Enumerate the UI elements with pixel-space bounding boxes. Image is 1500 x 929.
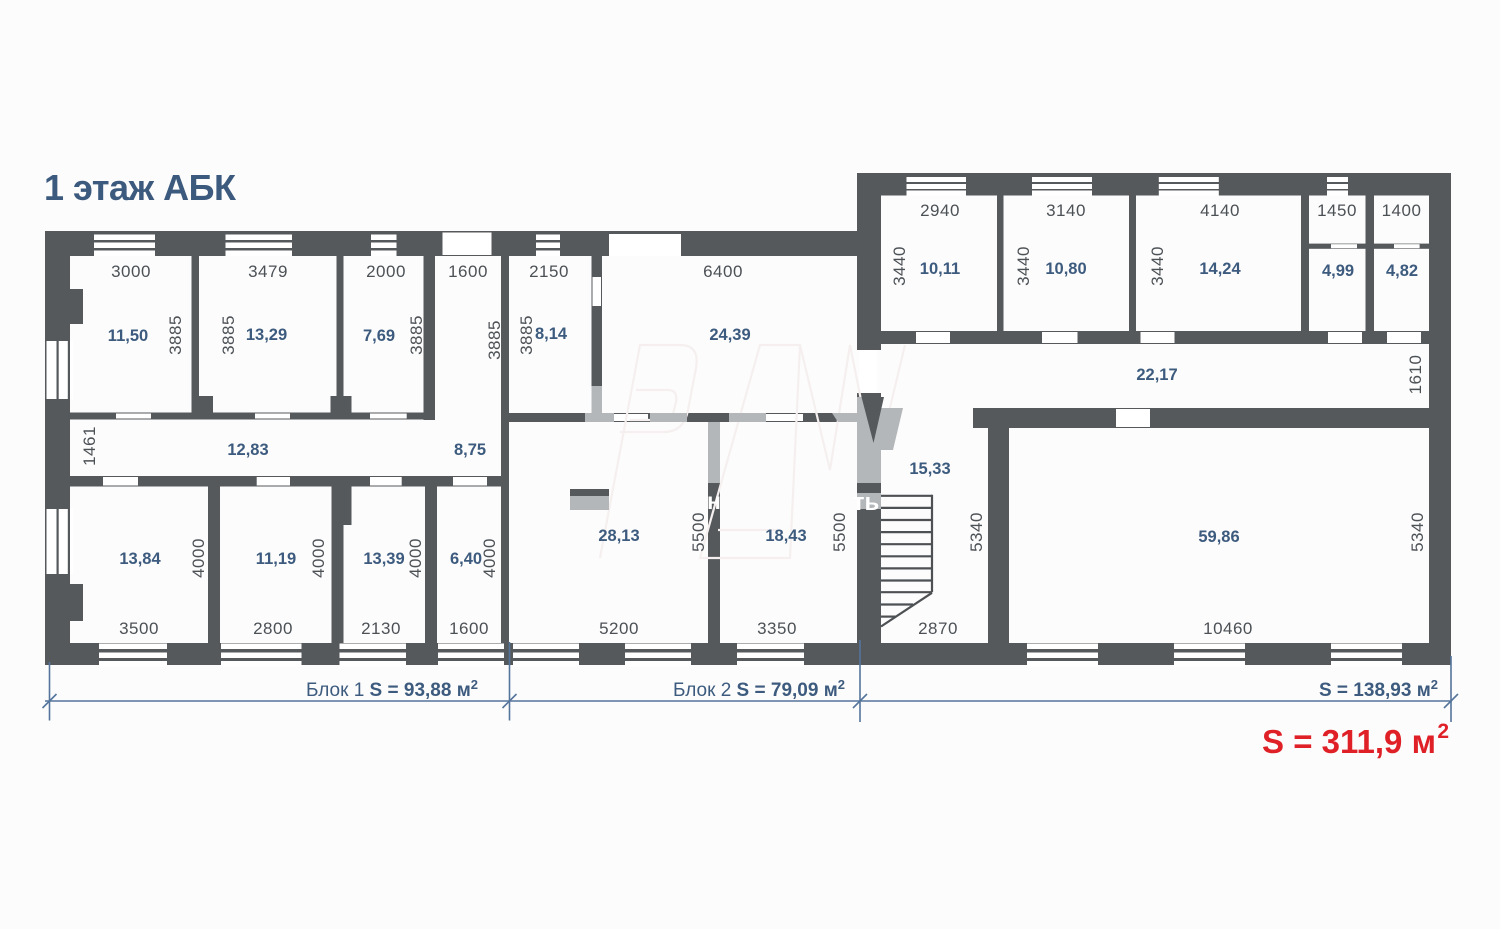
svg-text:8,14: 8,14 bbox=[535, 325, 568, 343]
svg-text:14,24: 14,24 bbox=[1199, 260, 1241, 278]
svg-text:13,29: 13,29 bbox=[246, 326, 287, 344]
svg-text:S = 311,9 м: S = 311,9 м bbox=[1262, 723, 1436, 760]
svg-text:1600: 1600 bbox=[448, 262, 488, 281]
svg-text:3000: 3000 bbox=[111, 262, 151, 281]
svg-text:3885: 3885 bbox=[517, 315, 536, 355]
svg-text:5340: 5340 bbox=[1408, 512, 1427, 552]
svg-text:3885: 3885 bbox=[219, 315, 238, 355]
svg-text:5500: 5500 bbox=[689, 512, 708, 552]
svg-text:Блок 1 S = 93,88 м2: Блок 1 S = 93,88 м2 bbox=[306, 677, 478, 701]
svg-text:22,17: 22,17 bbox=[1136, 366, 1177, 384]
svg-text:12,83: 12,83 bbox=[227, 441, 268, 459]
svg-text:1 этаж АБК: 1 этаж АБК bbox=[44, 167, 237, 208]
svg-text:3885: 3885 bbox=[407, 315, 426, 355]
svg-text:3440: 3440 bbox=[890, 246, 909, 286]
svg-text:S = 138,93 м2: S = 138,93 м2 bbox=[1319, 677, 1438, 701]
svg-text:4000: 4000 bbox=[309, 538, 328, 578]
svg-text:18,43: 18,43 bbox=[765, 527, 806, 545]
svg-text:3885: 3885 bbox=[166, 315, 185, 355]
svg-text:15,33: 15,33 bbox=[909, 460, 950, 478]
svg-text:2: 2 bbox=[1437, 720, 1449, 743]
svg-text:3440: 3440 bbox=[1148, 246, 1167, 286]
svg-text:3140: 3140 bbox=[1046, 201, 1086, 220]
svg-text:2000: 2000 bbox=[366, 262, 406, 281]
svg-text:4000: 4000 bbox=[480, 538, 499, 578]
svg-text:2150: 2150 bbox=[529, 262, 569, 281]
svg-text:10,11: 10,11 bbox=[920, 260, 960, 278]
svg-text:6,40: 6,40 bbox=[450, 550, 482, 568]
svg-text:8,75: 8,75 bbox=[454, 441, 486, 459]
svg-text:7,69: 7,69 bbox=[363, 327, 395, 345]
svg-text:ть: ть bbox=[853, 489, 880, 516]
svg-text:2130: 2130 bbox=[361, 619, 401, 638]
svg-text:3885: 3885 bbox=[485, 320, 504, 360]
svg-text:1610: 1610 bbox=[1406, 355, 1425, 395]
svg-text:4000: 4000 bbox=[406, 538, 425, 578]
svg-text:1400: 1400 bbox=[1382, 201, 1422, 220]
svg-text:1461: 1461 bbox=[80, 426, 99, 466]
svg-text:11,19: 11,19 bbox=[256, 550, 296, 568]
svg-text:3350: 3350 bbox=[757, 619, 797, 638]
svg-text:1450: 1450 bbox=[1317, 201, 1357, 220]
svg-text:4000: 4000 bbox=[189, 538, 208, 578]
svg-text:Блок 2 S = 79,09 м2: Блок 2 S = 79,09 м2 bbox=[673, 677, 845, 701]
svg-text:5340: 5340 bbox=[967, 512, 986, 552]
svg-text:10,80: 10,80 bbox=[1045, 260, 1086, 278]
svg-text:2870: 2870 bbox=[918, 619, 958, 638]
svg-text:4,82: 4,82 bbox=[1386, 262, 1418, 280]
svg-text:13,84: 13,84 bbox=[119, 550, 161, 568]
svg-text:59,86: 59,86 bbox=[1198, 528, 1239, 546]
svg-text:3440: 3440 bbox=[1014, 246, 1033, 286]
svg-text:13,39: 13,39 bbox=[363, 550, 404, 568]
svg-text:3479: 3479 bbox=[248, 262, 288, 281]
svg-text:1600: 1600 bbox=[449, 619, 489, 638]
svg-text:10460: 10460 bbox=[1203, 619, 1253, 638]
svg-text:24,39: 24,39 bbox=[709, 326, 750, 344]
svg-text:4140: 4140 bbox=[1200, 201, 1240, 220]
svg-text:28,13: 28,13 bbox=[598, 527, 639, 545]
svg-text:4,99: 4,99 bbox=[1322, 262, 1354, 280]
svg-text:5200: 5200 bbox=[599, 619, 639, 638]
svg-text:н: н bbox=[707, 488, 721, 514]
svg-text:11,50: 11,50 bbox=[108, 327, 148, 345]
svg-text:2800: 2800 bbox=[253, 619, 293, 638]
svg-text:2940: 2940 bbox=[920, 201, 960, 220]
svg-text:3500: 3500 bbox=[119, 619, 159, 638]
svg-text:5500: 5500 bbox=[830, 512, 849, 552]
svg-text:6400: 6400 bbox=[703, 262, 743, 281]
